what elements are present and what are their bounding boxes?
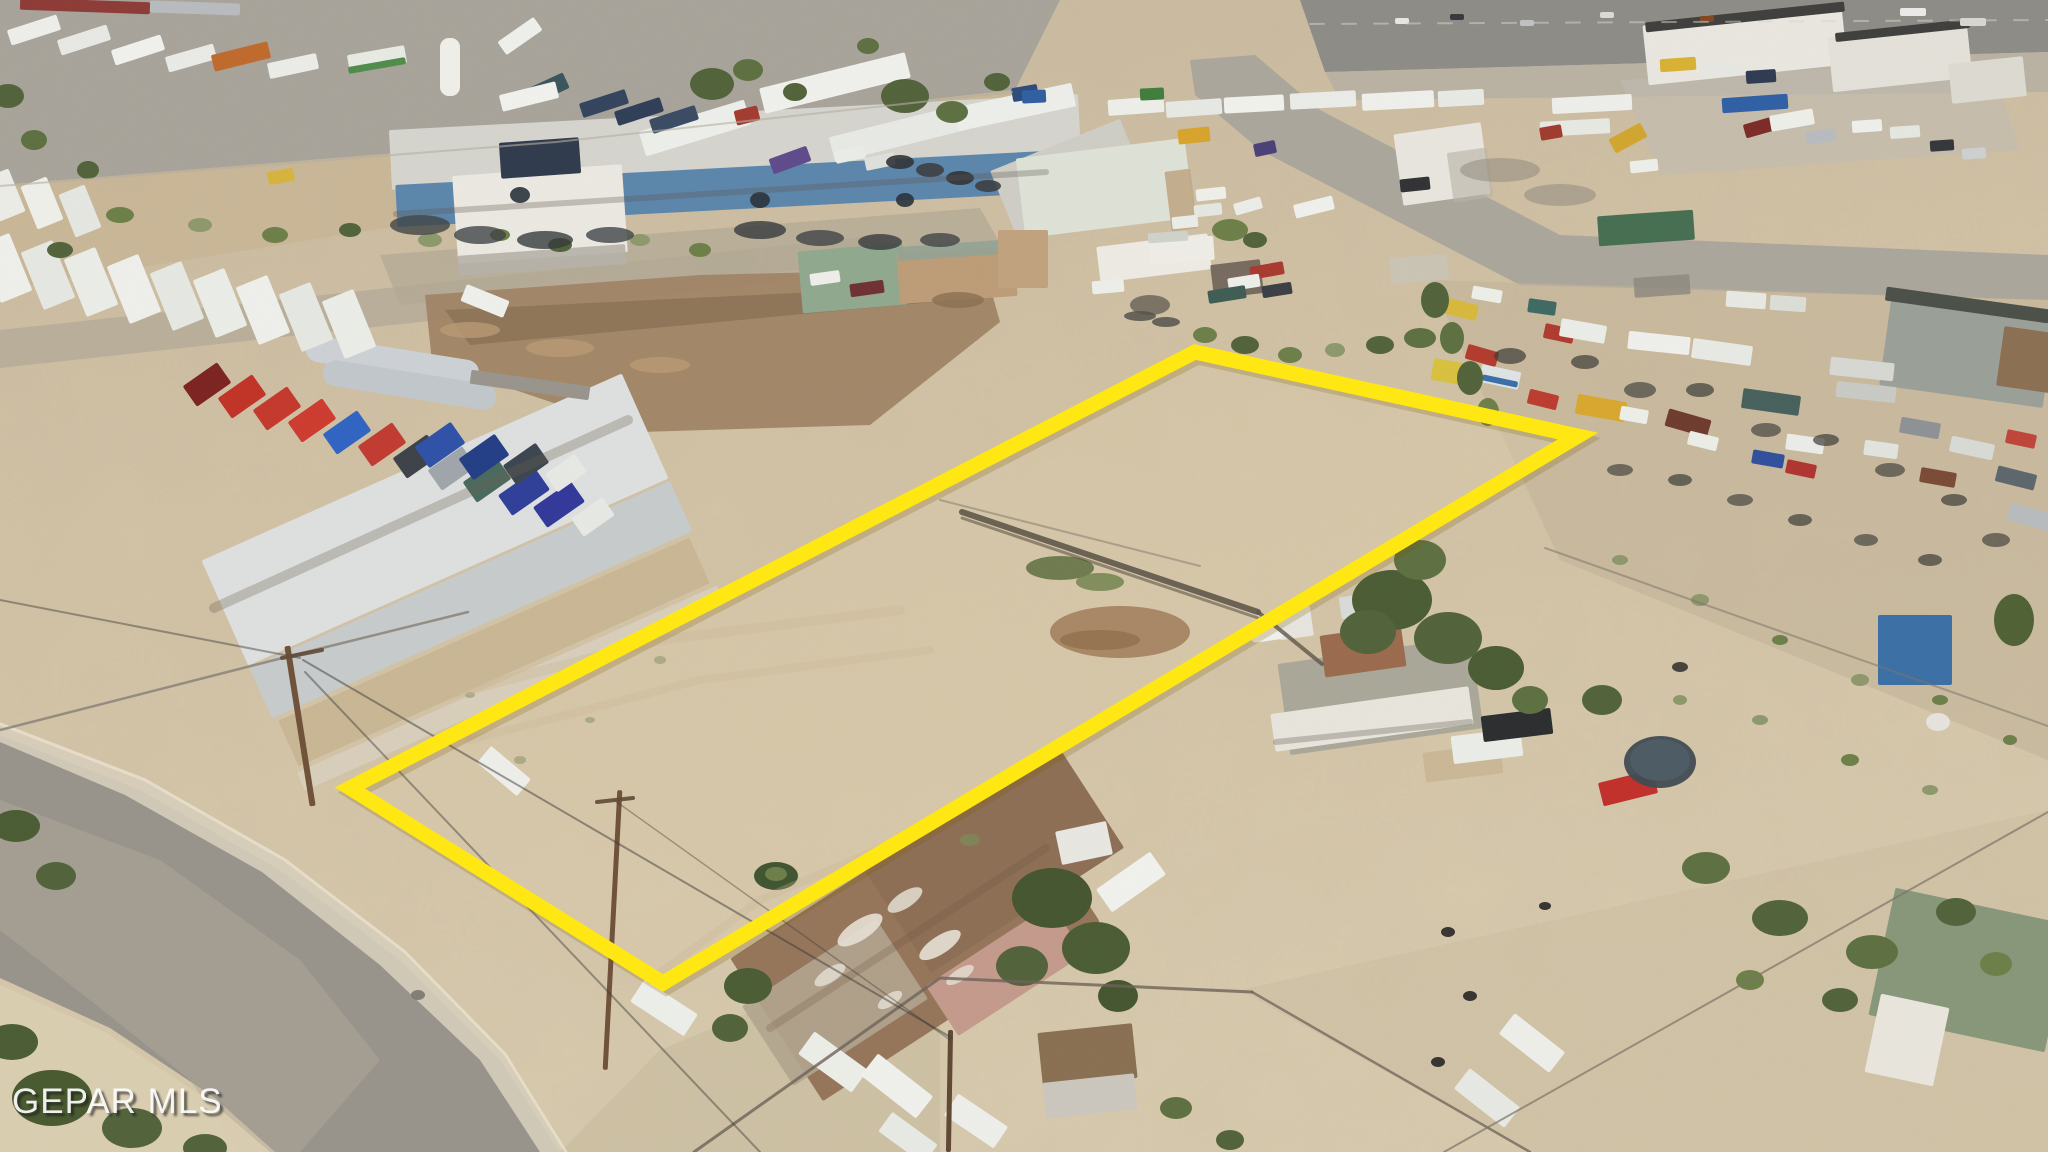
watermark: GEPAR MLS (12, 1082, 223, 1122)
photo-grain (0, 0, 2048, 1152)
aerial-photo: GEPAR MLS (0, 0, 2048, 1152)
aerial-photo-canvas (0, 0, 2048, 1152)
